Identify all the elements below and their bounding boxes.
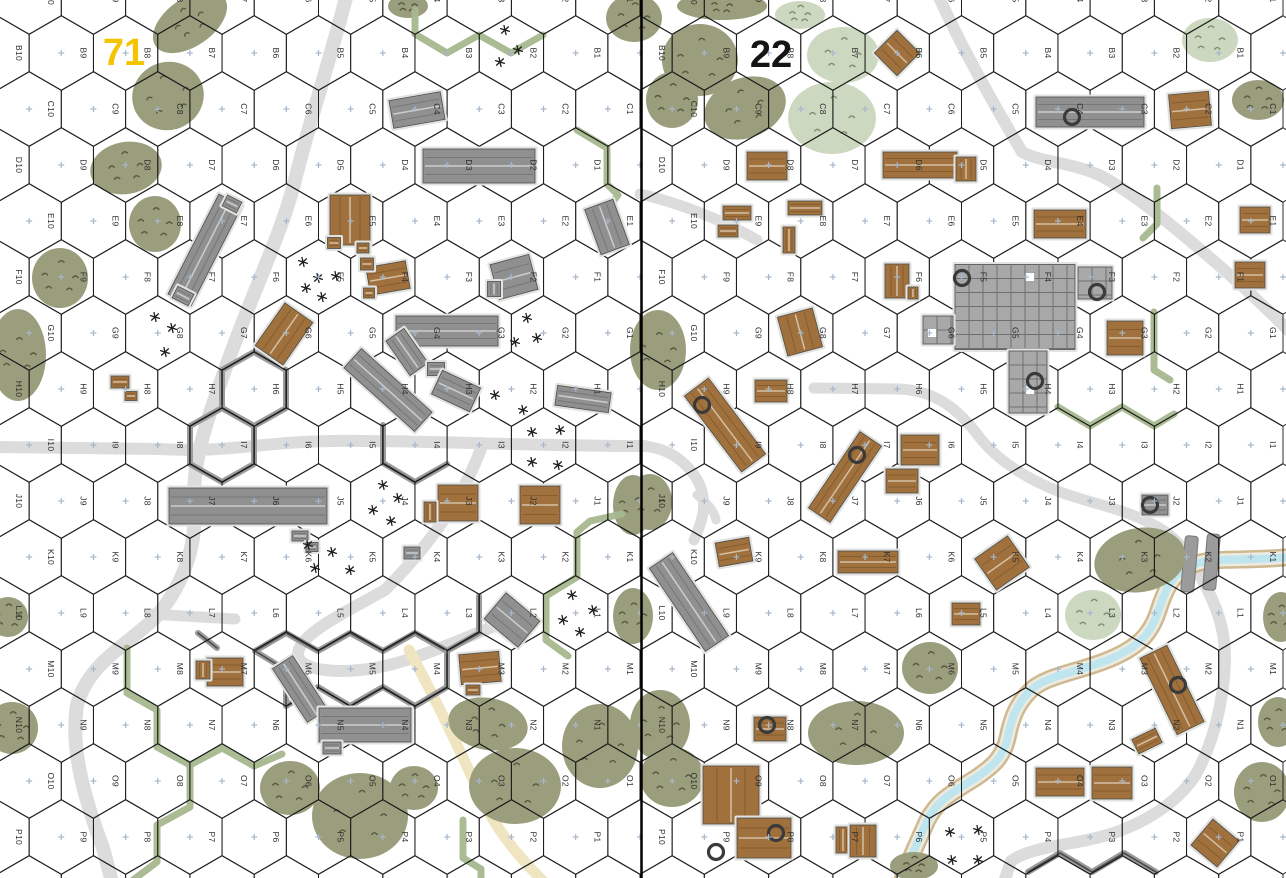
stone-building-17 — [317, 706, 414, 745]
hex-label-22-F10: F10 — [657, 269, 667, 285]
hex-label-71-J8: J8 — [143, 496, 153, 506]
hex-label-22-G5: G5 — [1011, 327, 1021, 339]
hex-label-22-C2: C2 — [1204, 103, 1214, 114]
brush-3 — [1182, 18, 1238, 62]
hex-label-22-C7: C7 — [882, 103, 892, 114]
hex-label-71-G9: G9 — [110, 327, 120, 339]
wood-building-66 — [1090, 765, 1135, 802]
stone-building-6 — [485, 279, 503, 299]
hex-label-22-I1: I1 — [1268, 441, 1278, 449]
hex-label-71-A2: A2 — [561, 0, 571, 3]
hex-label-71-M10: M10 — [46, 660, 56, 677]
hex-label-22-M9: M9 — [753, 663, 763, 675]
hex-label-71-O6: O6 — [303, 775, 313, 787]
hex-label-22-G3: G3 — [1139, 327, 1149, 339]
hex-label-71-J9: J9 — [78, 496, 88, 506]
hex-label-22-A1: A1 — [1268, 0, 1278, 3]
stone-building-73 — [1034, 95, 1147, 130]
hex-label-22-C4: C4 — [1075, 103, 1085, 114]
hex-label-71-D9: D9 — [78, 159, 88, 170]
hex-label-22-D10: D10 — [657, 157, 667, 174]
hex-label-71-K7: K7 — [239, 552, 249, 563]
hex-label-22-O1: O1 — [1268, 775, 1278, 787]
hex-label-71-F3: F3 — [464, 272, 474, 283]
hex-label-22-B7: B7 — [850, 48, 860, 59]
hex-label-71-C8: C8 — [175, 103, 185, 114]
hex-label-22-O7: O7 — [882, 775, 892, 787]
hex-label-22-I4: I4 — [1075, 441, 1085, 449]
hex-label-71-E1: E1 — [625, 216, 635, 227]
hex-label-22-I6: I6 — [946, 441, 956, 449]
hex-label-22-A6: A6 — [946, 0, 956, 3]
hex-label-71-B10: B10 — [14, 45, 24, 61]
hex-label-71-L7: L7 — [207, 608, 217, 618]
woods-23 — [630, 310, 686, 390]
hex-label-22-G2: G2 — [1204, 327, 1214, 339]
hex-label-71-C4: C4 — [432, 103, 442, 114]
hex-label-22-A10: A10 — [689, 0, 699, 5]
hex-label-22-J8: J8 — [786, 496, 796, 506]
hex-label-22-A5: A5 — [1011, 0, 1021, 3]
hex-label-22-F7: F7 — [850, 272, 860, 283]
hex-label-22-A7: A7 — [882, 0, 892, 3]
hex-label-71-O2: O2 — [561, 775, 571, 787]
woods-26-lobe — [1267, 597, 1286, 622]
hex-label-22-D5: D5 — [979, 159, 989, 170]
hex-label-22-I9: I9 — [753, 441, 763, 449]
hex-label-22-O4: O4 — [1075, 775, 1085, 787]
hex-label-22-P3: P3 — [1107, 832, 1117, 843]
hex-label-71-N7: N7 — [207, 719, 217, 730]
hex-label-71-I1: I1 — [625, 441, 635, 449]
hex-label-71-K10: K10 — [46, 549, 56, 565]
hex-label-22-A9: A9 — [753, 0, 763, 3]
hex-label-71-M8: M8 — [175, 663, 185, 675]
hex-map-svg[interactable]: A10A9A8A7A6A5A4A3A2A1A10A9A8A7A6A5A4A3A2… — [0, 0, 1286, 878]
hex-label-22-N3: N3 — [1107, 719, 1117, 730]
hex-label-22-F2: F2 — [1171, 272, 1181, 283]
hex-label-71-M6: M6 — [303, 663, 313, 675]
hex-label-71-D3: D3 — [464, 159, 474, 170]
hex-label-22-J4: J4 — [1043, 496, 1053, 506]
hex-label-22-E5: E5 — [1011, 216, 1021, 227]
hex-label-22-P8: P8 — [786, 832, 796, 843]
hex-label-22-I10: I10 — [689, 439, 699, 452]
hex-label-71-E4: E4 — [432, 216, 442, 227]
hex-label-22-P2: P2 — [1171, 832, 1181, 843]
wood-building-26 — [358, 256, 376, 273]
hex-label-22-L6: L6 — [914, 608, 924, 618]
woods-17 — [390, 766, 438, 810]
hex-label-71-P2: P2 — [528, 832, 538, 843]
hex-label-71-D10: D10 — [14, 157, 24, 174]
map-canvas[interactable]: A10A9A8A7A6A5A4A3A2A1A10A9A8A7A6A5A4A3A2… — [0, 0, 1286, 878]
board-number-71: 71 — [103, 32, 145, 74]
hex-label-22-D8: D8 — [786, 159, 796, 170]
hex-label-22-N6: N6 — [914, 719, 924, 730]
hex-label-22-K2: K2 — [1204, 552, 1214, 563]
hex-label-71-I4: I4 — [432, 441, 442, 449]
woods-27-lobe — [1262, 702, 1284, 727]
brush-3-lobe — [1188, 22, 1219, 44]
hex-label-22-B6: B6 — [914, 48, 924, 59]
building-body — [1078, 267, 1112, 299]
woods-4-lobe — [38, 254, 69, 284]
hex-label-71-K9: K9 — [110, 552, 120, 563]
hex-label-71-H9: H9 — [78, 383, 88, 394]
hex-label-22-O8: O8 — [818, 775, 828, 787]
hex-label-22-K7: K7 — [882, 552, 892, 563]
hex-label-22-D7: D7 — [850, 159, 860, 170]
hex-label-22-K10: K10 — [689, 549, 699, 565]
hex-label-71-N5: N5 — [336, 719, 346, 730]
hex-label-71-I8: I8 — [175, 441, 185, 449]
woods-13 — [469, 748, 561, 824]
woods-14-lobe — [570, 712, 612, 754]
hex-label-71-C1: C1 — [625, 103, 635, 114]
hex-label-22-A2: A2 — [1204, 0, 1214, 3]
hex-label-71-P10: P10 — [14, 829, 24, 845]
hex-label-71-B1: B1 — [593, 48, 603, 59]
hex-label-71-B5: B5 — [336, 48, 346, 59]
hex-label-71-C5: C5 — [368, 103, 378, 114]
hex-label-71-L6: L6 — [271, 608, 281, 618]
hex-label-71-G6: G6 — [303, 327, 313, 339]
hex-label-71-L4: L4 — [400, 608, 410, 618]
hex-label-22-D2: D2 — [1171, 159, 1181, 170]
hex-label-22-G7: G7 — [882, 327, 892, 339]
hex-label-22-J5: J5 — [979, 496, 989, 506]
woods-28-lobe — [908, 647, 939, 673]
hex-label-22-H2: H2 — [1171, 383, 1181, 394]
brush-2-lobe — [780, 4, 808, 18]
hex-label-71-C9: C9 — [110, 103, 120, 114]
hex-label-71-C10: C10 — [46, 101, 56, 118]
wood-building-57 — [899, 433, 942, 468]
hex-label-22-E9: E9 — [753, 216, 763, 227]
hex-label-71-O8: O8 — [175, 775, 185, 787]
hex-label-22-P10: P10 — [657, 829, 667, 845]
hex-label-71-N8: N8 — [143, 719, 153, 730]
hex-label-71-J7: J7 — [207, 496, 217, 506]
wood-building-29 — [109, 374, 132, 391]
hex-label-22-B10: B10 — [657, 45, 667, 61]
wood-building-33 — [518, 484, 563, 527]
hex-label-22-N1: N1 — [1236, 719, 1246, 730]
hex-label-22-K6: K6 — [946, 552, 956, 563]
hex-label-71-F6: F6 — [271, 272, 281, 283]
hex-label-22-E7: E7 — [882, 216, 892, 227]
hex-label-71-E8: E8 — [175, 216, 185, 227]
hex-label-71-A6: A6 — [303, 0, 313, 3]
hex-label-71-K8: K8 — [175, 552, 185, 563]
wood-building-42 — [716, 223, 741, 240]
hex-label-71-O9: O9 — [110, 775, 120, 787]
hex-label-71-L10: L10 — [14, 605, 24, 620]
hex-label-22-M5: M5 — [1011, 663, 1021, 675]
hex-label-22-H8: H8 — [786, 383, 796, 394]
hex-label-71-O5: O5 — [368, 775, 378, 787]
wood-building-24 — [355, 241, 372, 256]
wood-building-44 — [781, 225, 798, 256]
hex-label-71-E9: E9 — [110, 216, 120, 227]
hex-label-22-L8: L8 — [786, 608, 796, 618]
hex-label-22-N10: N10 — [657, 717, 667, 734]
hex-label-71-D6: D6 — [271, 159, 281, 170]
hex-label-22-P9: P9 — [721, 832, 731, 843]
hex-label-22-C3: C3 — [1139, 103, 1149, 114]
hex-label-71-E2: E2 — [561, 216, 571, 227]
hex-label-71-J6: J6 — [271, 496, 281, 506]
hex-label-22-L7: L7 — [850, 608, 860, 618]
wood-building-54 — [753, 378, 790, 405]
hex-label-22-M2: M2 — [1204, 663, 1214, 675]
hex-label-71-M3: M3 — [496, 663, 506, 675]
hex-label-71-I6: I6 — [303, 441, 313, 449]
hex-label-71-F8: F8 — [143, 272, 153, 283]
hex-label-71-K3: K3 — [496, 552, 506, 563]
hex-label-71-K2: K2 — [561, 552, 571, 563]
hex-label-22-K4: K4 — [1075, 552, 1085, 563]
hex-label-22-B3: B3 — [1107, 48, 1117, 59]
hex-label-71-K5: K5 — [368, 552, 378, 563]
hex-label-71-L1: L1 — [593, 608, 603, 618]
hex-label-71-P5: P5 — [336, 832, 346, 843]
hex-label-22-I8: I8 — [818, 441, 828, 449]
board-number-22: 22 — [750, 34, 792, 76]
hex-label-71-D1: D1 — [593, 159, 603, 170]
hex-label-22-P5: P5 — [979, 832, 989, 843]
hex-label-71-F10: F10 — [14, 269, 24, 285]
hex-label-71-E5: E5 — [368, 216, 378, 227]
hex-label-22-C6: C6 — [946, 103, 956, 114]
hex-label-22-G10: G10 — [689, 325, 699, 342]
hex-label-71-N10: N10 — [14, 717, 24, 734]
hex-label-71-N4: N4 — [400, 719, 410, 730]
hex-label-22-E4: E4 — [1075, 216, 1085, 227]
hex-label-71-L2: L2 — [528, 608, 538, 618]
hex-label-71-H3: H3 — [464, 383, 474, 394]
hex-label-71-I5: I5 — [368, 441, 378, 449]
hex-label-22-D4: D4 — [1043, 159, 1053, 170]
hex-label-71-J3: J3 — [464, 496, 474, 506]
stone-building-14 — [167, 486, 330, 527]
hex-label-71-F1: F1 — [593, 272, 603, 283]
hex-label-22-E10: E10 — [689, 213, 699, 229]
hex-label-22-O9: O9 — [753, 775, 763, 787]
hex-label-22-F6: F6 — [914, 272, 924, 283]
wood-building-27 — [361, 286, 377, 301]
woods-24-lobe — [632, 480, 656, 508]
hex-label-22-N9: N9 — [721, 719, 731, 730]
wood-building-35 — [194, 659, 213, 682]
hex-label-22-H1: H1 — [1236, 383, 1246, 394]
hex-label-71-A3: A3 — [496, 0, 506, 3]
hex-label-71-M2: M2 — [561, 663, 571, 675]
hex-label-71-J5: J5 — [336, 496, 346, 506]
hex-label-71-M9: M9 — [110, 663, 120, 675]
hex-label-22-E8: E8 — [818, 216, 828, 227]
hex-label-71-A1: A1 — [625, 0, 635, 3]
hex-label-71-N9: N9 — [78, 719, 88, 730]
hex-label-22-B5: B5 — [979, 48, 989, 59]
hex-label-71-H6: H6 — [271, 383, 281, 394]
hex-label-22-G4: G4 — [1075, 327, 1085, 339]
hex-label-71-B4: B4 — [400, 48, 410, 59]
hex-label-71-G7: G7 — [239, 327, 249, 339]
hex-label-22-P4: P4 — [1043, 832, 1053, 843]
hex-label-22-A4: A4 — [1075, 0, 1085, 3]
hex-label-22-E3: E3 — [1139, 216, 1149, 227]
hex-label-22-P1: P1 — [1236, 832, 1246, 843]
hex-label-22-O6: O6 — [946, 775, 956, 787]
hex-label-22-M8: M8 — [818, 663, 828, 675]
hex-label-22-I7: I7 — [882, 441, 892, 449]
hex-label-71-H10: H10 — [14, 381, 24, 398]
hex-label-71-I2: I2 — [561, 441, 571, 449]
hex-label-71-B7: B7 — [207, 48, 217, 59]
hex-label-22-H9: H9 — [721, 383, 731, 394]
hex-label-22-H6: H6 — [914, 383, 924, 394]
hex-label-22-N7: N7 — [850, 719, 860, 730]
hex-label-71-L3: L3 — [464, 608, 474, 618]
woods-18-lobe — [670, 31, 712, 67]
hex-label-71-G2: G2 — [561, 327, 571, 339]
hex-label-71-G4: G4 — [432, 327, 442, 339]
hex-label-22-N2: N2 — [1171, 719, 1181, 730]
hex-label-22-F4: F4 — [1043, 272, 1053, 283]
hex-label-71-B9: B9 — [78, 48, 88, 59]
hex-label-71-H8: H8 — [143, 383, 153, 394]
hex-label-71-P8: P8 — [143, 832, 153, 843]
hex-label-71-C3: C3 — [496, 103, 506, 114]
hex-label-71-B6: B6 — [271, 48, 281, 59]
hex-label-22-D9: D9 — [721, 159, 731, 170]
hex-label-71-F5: F5 — [336, 272, 346, 283]
wood-building-50 — [906, 285, 921, 302]
hex-label-71-E6: E6 — [303, 216, 313, 227]
hex-label-71-L5: L5 — [336, 608, 346, 618]
hex-label-22-J7: J7 — [850, 496, 860, 506]
hex-label-71-A9: A9 — [110, 0, 120, 3]
hex-label-71-G1: G1 — [625, 327, 635, 339]
hex-label-22-G6: G6 — [946, 327, 956, 339]
hex-label-22-M10: M10 — [689, 660, 699, 677]
hex-label-22-M3: M3 — [1139, 663, 1149, 675]
factory-building-77 — [1076, 265, 1115, 302]
hex-label-22-E6: E6 — [946, 216, 956, 227]
hex-label-71-P1: P1 — [593, 832, 603, 843]
hex-label-71-F4: F4 — [400, 272, 410, 283]
hex-label-22-J10: J10 — [657, 494, 667, 509]
hex-label-22-K9: K9 — [753, 552, 763, 563]
hex-label-71-O7: O7 — [239, 775, 249, 787]
hex-label-71-C7: C7 — [239, 103, 249, 114]
hex-label-71-D4: D4 — [400, 159, 410, 170]
hex-label-22-O10: O10 — [689, 773, 699, 790]
hex-label-71-N3: N3 — [464, 719, 474, 730]
wood-building-37 — [464, 683, 483, 698]
hex-label-71-A8: A8 — [175, 0, 185, 3]
hex-label-71-I7: I7 — [239, 441, 249, 449]
hex-label-71-H7: H7 — [207, 383, 217, 394]
wood-building-40 — [954, 155, 979, 184]
hex-label-22-B1: B1 — [1236, 48, 1246, 59]
hex-label-22-C10: C10 — [689, 101, 699, 118]
hex-label-71-P3: P3 — [464, 832, 474, 843]
woods-3-lobe — [134, 202, 163, 230]
hex-label-71-M5: M5 — [368, 663, 378, 675]
hex-label-22-N8: N8 — [786, 719, 796, 730]
hex-label-71-M7: M7 — [239, 663, 249, 675]
hex-label-71-D5: D5 — [336, 159, 346, 170]
brush-1 — [788, 82, 876, 154]
hex-label-22-F8: F8 — [786, 272, 796, 283]
hex-label-71-O3: O3 — [496, 775, 506, 787]
hex-label-71-C2: C2 — [561, 103, 571, 114]
hex-label-22-J1: J1 — [1236, 496, 1246, 506]
hex-label-71-C6: C6 — [303, 103, 313, 114]
hex-label-71-P4: P4 — [400, 832, 410, 843]
hex-label-71-A4: A4 — [432, 0, 442, 3]
hex-label-71-G5: G5 — [368, 327, 378, 339]
hex-label-22-F1: F1 — [1236, 272, 1246, 283]
wood-building-46 — [1238, 205, 1273, 236]
hex-label-71-M4: M4 — [432, 663, 442, 675]
hex-label-71-I3: I3 — [496, 441, 506, 449]
hex-label-71-E7: E7 — [239, 216, 249, 227]
hex-label-22-M6: M6 — [946, 663, 956, 675]
stone-building-1 — [421, 147, 538, 186]
hex-label-71-D8: D8 — [143, 159, 153, 170]
hex-label-22-C8: C8 — [818, 103, 828, 114]
hex-label-71-E3: E3 — [496, 216, 506, 227]
hex-label-71-M1: M1 — [625, 663, 635, 675]
hex-label-22-L3: L3 — [1107, 608, 1117, 618]
hex-label-22-I3: I3 — [1139, 441, 1149, 449]
hex-label-71-A10: A10 — [46, 0, 56, 5]
woods-15 — [260, 761, 320, 815]
hex-label-22-N5: N5 — [979, 719, 989, 730]
hex-label-22-J6: J6 — [914, 496, 924, 506]
hex-label-71-F7: F7 — [207, 272, 217, 283]
hex-label-71-F2: F2 — [528, 272, 538, 283]
woods-32-lobe — [1240, 768, 1271, 798]
hex-label-71-D7: D7 — [207, 159, 217, 170]
hex-label-22-H3: H3 — [1107, 383, 1117, 394]
hex-label-22-D6: D6 — [914, 159, 924, 170]
hex-label-22-G9: G9 — [753, 327, 763, 339]
hex-label-22-E1: E1 — [1268, 216, 1278, 227]
hex-label-71-H2: H2 — [528, 383, 538, 394]
hex-label-71-A7: A7 — [239, 0, 249, 3]
hex-label-22-M7: M7 — [882, 663, 892, 675]
brush-4-lobe — [1071, 595, 1102, 620]
hex-label-71-G8: G8 — [175, 327, 185, 339]
hex-label-22-B4: B4 — [1043, 48, 1053, 59]
woods-9 — [613, 588, 653, 644]
hex-label-22-K1: K1 — [1268, 552, 1278, 563]
hex-label-22-H7: H7 — [850, 383, 860, 394]
hex-label-22-K5: K5 — [1011, 552, 1021, 563]
hex-label-71-H4: H4 — [400, 383, 410, 394]
hex-label-22-B9: B9 — [721, 48, 731, 59]
hex-label-22-I5: I5 — [1011, 441, 1021, 449]
hex-label-22-G1: G1 — [1268, 327, 1278, 339]
hex-label-71-G3: G3 — [496, 327, 506, 339]
wood-building-68 — [735, 816, 794, 861]
stone-building-18 — [321, 740, 344, 757]
